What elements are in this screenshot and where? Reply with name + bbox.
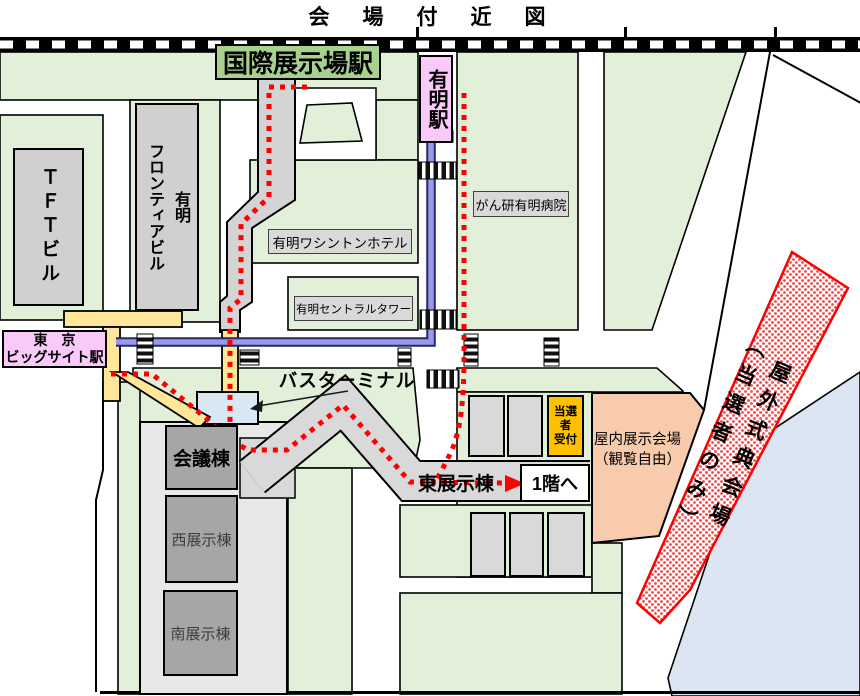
building-ariake-frontier: 有明 フロンティアビル: [135, 103, 199, 311]
green-quad: [300, 103, 362, 143]
indoor-venue-line1: 屋内展示会場: [594, 430, 681, 450]
bus-terminal-label: バスターミナル: [262, 368, 432, 392]
winner-reception-box: 当選者 受付: [547, 395, 584, 457]
indoor-venue-line2: （観覧自由）: [594, 450, 681, 470]
page-title: 会 場 付 近 図: [0, 2, 860, 30]
building-washington-hotel: 有明ワシントンホテル: [268, 229, 412, 254]
station-tokyo-big-sight-line1: 東 京: [34, 332, 76, 349]
building-west-hall: 西展示棟: [165, 495, 238, 583]
exhibition-block-lower-1: [470, 512, 506, 577]
winner-reception-line2: 受付: [554, 433, 577, 447]
building-south-hall: 南展示棟: [163, 590, 238, 676]
exhibition-block-upper-2: [507, 395, 543, 457]
station-tokyo-big-sight: 東 京 ビッグサイト駅: [2, 330, 107, 368]
exhibition-block-upper-1: [468, 395, 505, 457]
station-kokusai-tenjijo: 国際展示場駅: [215, 44, 381, 80]
winner-reception-line1: 当選者: [549, 405, 582, 433]
building-tft: ＴＦＴビル: [13, 148, 84, 306]
station-tokyo-big-sight-line2: ビッグサイト駅: [6, 349, 104, 366]
building-central-tower: 有明セントラルタワー: [294, 296, 413, 321]
to-first-floor-box: 1階へ: [520, 464, 590, 502]
building-hospital: がん研有明病院: [473, 191, 569, 217]
station-ariake: 有明駅: [419, 55, 453, 143]
building-east-hall-label: 東展示棟: [410, 470, 502, 494]
exhibition-block-lower-3: [547, 512, 585, 577]
exhibition-block-lower-2: [509, 512, 544, 577]
venue-vicinity-map: 会 場 付 近 図 国際展示場駅 有明駅 東 京 ビッグサイト駅 ＴＦＴビル 有…: [0, 0, 860, 696]
building-conference-hall: 会議棟: [165, 425, 238, 490]
